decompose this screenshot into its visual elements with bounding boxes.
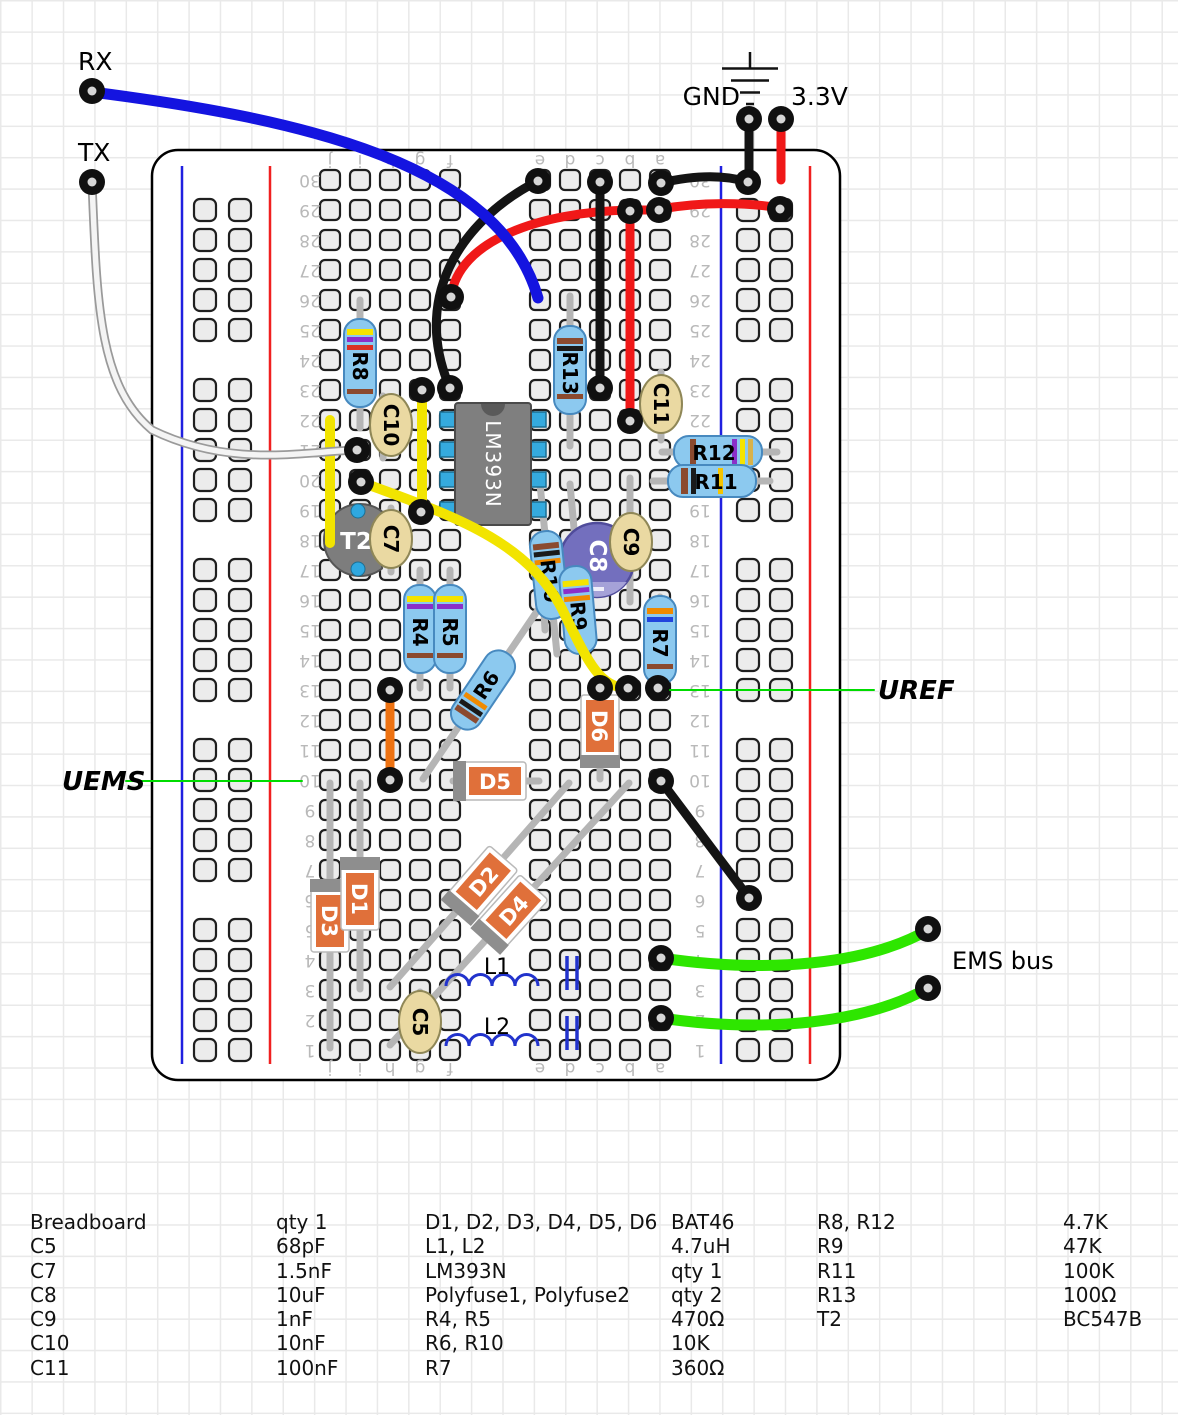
wire-terminal-hole (353, 446, 362, 455)
parts-row: D1, D2, D3, D4, D5, D6BAT46 (425, 1210, 735, 1234)
column-letter: d (565, 150, 576, 170)
board-hole (650, 800, 670, 820)
part-name: R11 (817, 1259, 1063, 1283)
part-value: 100Ω (1063, 1283, 1116, 1307)
component-d6: D6 (580, 695, 620, 768)
part-name: D1, D2, D3, D4, D5, D6 (425, 1210, 671, 1234)
board-hole (320, 590, 340, 610)
board-hole (380, 620, 400, 640)
rail-hole (737, 589, 759, 611)
rail-hole (229, 619, 251, 641)
parts-row: R11100K (817, 1259, 1142, 1283)
wire-terminal-hole (745, 115, 754, 124)
board-hole (320, 230, 340, 250)
rail-hole (770, 979, 792, 1001)
parts-row: R4, R5470Ω (425, 1307, 735, 1331)
part-value: 1.5nF (276, 1259, 332, 1283)
rail-hole (770, 229, 792, 251)
board-hole (380, 890, 400, 910)
board-hole (620, 860, 640, 880)
rail-hole (229, 949, 251, 971)
row-number: 30 (299, 170, 321, 190)
board-hole (350, 650, 370, 670)
row-number: 16 (689, 590, 711, 610)
board-hole (650, 890, 670, 910)
row-number: 10 (299, 770, 321, 790)
component-lm393n: LM393N (440, 403, 546, 525)
row-number: 9 (305, 800, 316, 820)
board-hole (320, 200, 340, 220)
wire-terminal-hole (447, 293, 456, 302)
part-value: 47K (1063, 1234, 1102, 1258)
row-number: 25 (299, 320, 321, 340)
row-number: 8 (305, 830, 316, 850)
t2-pin-bottom (351, 562, 365, 576)
board-hole (380, 350, 400, 370)
rail-hole (194, 919, 216, 941)
wire-terminal-hole (534, 177, 543, 186)
column-letter: a (655, 1058, 665, 1078)
board-hole (320, 620, 340, 640)
board-hole (560, 260, 580, 280)
board-hole (320, 680, 340, 700)
parts-row: C568pF (30, 1234, 338, 1258)
column-letter: b (625, 150, 636, 170)
component-c11: C11 (640, 375, 682, 433)
board-hole (320, 350, 340, 370)
part-value: 100nF (276, 1356, 338, 1380)
board-hole (590, 470, 610, 490)
board-hole (650, 290, 670, 310)
rail-hole (770, 559, 792, 581)
board-hole (620, 1040, 640, 1060)
row-number: 14 (689, 650, 711, 670)
board-hole (560, 890, 580, 910)
board-hole (650, 920, 670, 940)
c10-label: C10 (379, 404, 403, 447)
board-hole (620, 650, 640, 670)
row-number: 2 (305, 1010, 316, 1030)
rail-hole (194, 949, 216, 971)
component-r7: R7 (644, 596, 676, 684)
wire-terminal-hole (657, 179, 666, 188)
rail-hole (194, 319, 216, 341)
parts-row: C71.5nF (30, 1259, 338, 1283)
column-letter: j (328, 150, 334, 170)
board-hole (440, 530, 460, 550)
board-hole (380, 1010, 400, 1030)
rail-hole (194, 379, 216, 401)
rail-hole (229, 229, 251, 251)
column-letter: d (565, 1058, 576, 1078)
rail-hole (737, 619, 759, 641)
wire-terminal-hole (657, 954, 666, 963)
row-number: 4 (305, 950, 316, 970)
rail-hole (194, 199, 216, 221)
board-hole (380, 590, 400, 610)
board-hole (410, 350, 430, 370)
part-name: T2 (817, 1307, 1063, 1331)
board-hole (620, 950, 640, 970)
board-hole (650, 230, 670, 250)
row-number: 24 (689, 350, 711, 370)
rail-hole (770, 259, 792, 281)
column-letter: i (358, 1058, 363, 1078)
board-hole (620, 980, 640, 1000)
board-hole (620, 740, 640, 760)
board-hole (410, 800, 430, 820)
rail-hole (194, 1039, 216, 1061)
parts-row: R13100Ω (817, 1283, 1142, 1307)
board-hole (650, 350, 670, 370)
board-hole (410, 830, 430, 850)
board-hole (350, 620, 370, 640)
rail-hole (229, 739, 251, 761)
part-value: qty 2 (671, 1283, 722, 1307)
board-hole (410, 320, 430, 340)
rail-hole (770, 739, 792, 761)
component-r11: R11 (668, 465, 756, 497)
row-number: 18 (299, 530, 321, 550)
row-number: 27 (299, 260, 321, 280)
rail-hole (770, 619, 792, 641)
rail-hole (737, 1039, 759, 1061)
component-r4: R4 (404, 585, 436, 673)
l1-label: L1 (484, 955, 510, 980)
rail-hole (737, 979, 759, 1001)
board-hole (410, 740, 430, 760)
board-hole (530, 320, 550, 340)
column-letter: b (625, 1058, 636, 1078)
rail-hole (737, 289, 759, 311)
uref-label: UREF (878, 676, 955, 706)
rail-hole (737, 259, 759, 281)
parts-row: Breadboardqty 1 (30, 1210, 338, 1234)
board-hole (380, 290, 400, 310)
component-r5: R5 (434, 585, 466, 673)
row-number: 26 (299, 290, 321, 310)
board-hole (620, 890, 640, 910)
column-letter: f (446, 150, 453, 170)
part-value: qty 1 (276, 1210, 327, 1234)
board-hole (380, 800, 400, 820)
rail-hole (737, 829, 759, 851)
rail-hole (229, 979, 251, 1001)
board-hole (530, 380, 550, 400)
wire-terminal-hole (654, 684, 663, 693)
3v3-label: 3.3V (791, 82, 848, 111)
part-name: L1, L2 (425, 1234, 671, 1258)
board-hole (410, 890, 430, 910)
part-name: Breadboard (30, 1210, 276, 1234)
board-hole (440, 200, 460, 220)
rail-hole (194, 859, 216, 881)
r7-label: R7 (648, 628, 672, 657)
board-hole (410, 260, 430, 280)
part-value: 4.7uH (671, 1234, 731, 1258)
rx-label: RX (78, 47, 113, 76)
row-number: 11 (689, 740, 711, 760)
board-hole (320, 260, 340, 280)
r5-label: R5 (438, 617, 462, 646)
board-hole (650, 980, 670, 1000)
rail-hole (737, 409, 759, 431)
rail-hole (194, 679, 216, 701)
board-hole (590, 1040, 610, 1060)
board-hole (650, 710, 670, 730)
parts-row: LM393Nqty 1 (425, 1259, 735, 1283)
uems-label: UEMS (62, 767, 145, 797)
rail-hole (229, 409, 251, 431)
ems-bus-label: EMS bus (952, 947, 1054, 975)
rail-hole (770, 799, 792, 821)
row-number: 22 (299, 410, 321, 430)
board-hole (620, 440, 640, 460)
component-r13: R13 (554, 326, 586, 414)
rail-hole (194, 289, 216, 311)
row-number: 18 (689, 530, 711, 550)
rail-hole (229, 679, 251, 701)
board-hole (530, 650, 550, 670)
part-name: C9 (30, 1307, 276, 1331)
board-hole (560, 740, 580, 760)
row-number: 13 (299, 680, 321, 700)
rail-hole (737, 499, 759, 521)
parts-row: C810uF (30, 1283, 338, 1307)
rail-hole (737, 559, 759, 581)
rail-hole (770, 589, 792, 611)
board-hole (350, 260, 370, 280)
board-hole (560, 170, 580, 190)
board-hole (410, 290, 430, 310)
board-hole (350, 710, 370, 730)
board-hole (380, 200, 400, 220)
board-hole (380, 650, 400, 670)
wire-terminal-hole (657, 1014, 666, 1023)
wire-terminal-hole (626, 417, 635, 426)
board-hole (590, 980, 610, 1000)
row-number: 19 (299, 500, 321, 520)
r4-label: R4 (408, 617, 432, 646)
wire-terminal-hole (386, 776, 395, 785)
r12-label: R12 (692, 441, 735, 465)
parts-row: C91nF (30, 1307, 338, 1331)
row-number: 7 (695, 860, 706, 880)
column-letter: h (385, 1058, 396, 1078)
rail-hole (770, 649, 792, 671)
rail-hole (770, 769, 792, 791)
board-hole (620, 710, 640, 730)
row-number: 23 (299, 380, 321, 400)
board-hole (440, 320, 460, 340)
board-hole (380, 260, 400, 280)
part-name: R8, R12 (817, 1210, 1063, 1234)
board-hole (620, 920, 640, 940)
column-letter: a (655, 150, 665, 170)
board-hole (590, 500, 610, 520)
board-hole (530, 920, 550, 940)
row-number: 17 (299, 560, 321, 580)
rail-hole (737, 799, 759, 821)
part-name: R4, R5 (425, 1307, 671, 1331)
component-r8: R8 (344, 319, 376, 407)
t2-pin-top (351, 504, 365, 518)
row-number: 15 (689, 620, 711, 640)
part-name: C5 (30, 1234, 276, 1258)
board-hole (440, 830, 460, 850)
parts-row: L1, L24.7uH (425, 1234, 735, 1258)
board-hole (350, 680, 370, 700)
board-hole (350, 170, 370, 190)
wire-terminal-hole (596, 684, 605, 693)
rail-hole (194, 829, 216, 851)
row-number: 26 (689, 290, 711, 310)
row-number: 17 (689, 560, 711, 580)
column-letter: f (446, 1058, 453, 1078)
board-hole (590, 860, 610, 880)
wire-terminal-hole (88, 87, 97, 96)
rail-hole (194, 979, 216, 1001)
rail-hole (770, 1039, 792, 1061)
board-hole (650, 260, 670, 280)
rail-hole (737, 859, 759, 881)
board-hole (410, 710, 430, 730)
d1-label: D1 (347, 883, 371, 915)
board-hole (620, 830, 640, 850)
board-hole (650, 1040, 670, 1060)
board-hole (410, 920, 430, 940)
board-hole (350, 1040, 370, 1060)
wire-terminal-hole (745, 894, 754, 903)
c9-label: C9 (619, 528, 643, 557)
board-hole (560, 800, 580, 820)
rail-hole (770, 859, 792, 881)
board-hole (440, 1010, 460, 1030)
r13-label: R13 (558, 351, 582, 394)
part-value: BAT46 (671, 1210, 735, 1234)
row-number: 5 (695, 920, 706, 940)
board-hole (530, 740, 550, 760)
row-number: 14 (299, 650, 321, 670)
rail-hole (229, 649, 251, 671)
part-name: LM393N (425, 1259, 671, 1283)
board-hole (530, 710, 550, 730)
rail-hole (229, 559, 251, 581)
rail-hole (737, 379, 759, 401)
board-hole (620, 800, 640, 820)
part-value: 4.7K (1063, 1210, 1108, 1234)
rail-hole (737, 739, 759, 761)
board-hole (320, 710, 340, 730)
rail-hole (229, 919, 251, 941)
component-d5: D5 (453, 761, 526, 801)
board-hole (350, 740, 370, 760)
part-value: 470Ω (671, 1307, 724, 1331)
board-hole (560, 230, 580, 250)
part-value: 100K (1063, 1259, 1114, 1283)
board-hole (320, 320, 340, 340)
row-number: 10 (689, 770, 711, 790)
board-hole (530, 980, 550, 1000)
row-number: 6 (695, 890, 706, 910)
board-hole (320, 380, 340, 400)
rail-hole (194, 469, 216, 491)
rail-hole (229, 1009, 251, 1031)
row-number: 9 (695, 800, 706, 820)
board-hole (620, 1010, 640, 1030)
board-hole (560, 860, 580, 880)
board-hole (410, 230, 430, 250)
parts-row: C1010nF (30, 1331, 338, 1355)
board-hole (320, 650, 340, 670)
board-hole (650, 830, 670, 850)
part-name: R6, R10 (425, 1331, 671, 1355)
wire-terminal-hole (655, 206, 664, 215)
rail-hole (770, 379, 792, 401)
wire-terminal-hole (418, 386, 427, 395)
t2-label: T2 (340, 529, 372, 555)
wire-terminal-hole (924, 984, 933, 993)
board-hole (440, 1040, 460, 1060)
wire-terminal-hole (88, 178, 97, 187)
component-c9: C9 (610, 513, 652, 571)
board-hole (590, 890, 610, 910)
row-number: 11 (299, 740, 321, 760)
board-hole (440, 800, 460, 820)
rail-hole (770, 289, 792, 311)
rail-hole (737, 919, 759, 941)
part-value: 68pF (276, 1234, 326, 1258)
board-hole (530, 830, 550, 850)
board-hole (380, 830, 400, 850)
c7-label: C7 (379, 525, 403, 554)
board-hole (650, 320, 670, 340)
rail-hole (737, 319, 759, 341)
board-hole (650, 530, 670, 550)
part-name: C11 (30, 1356, 276, 1380)
parts-column-1: Breadboardqty 1C568pFC71.5nFC810uFC91nFC… (30, 1210, 338, 1380)
rail-hole (194, 229, 216, 251)
board-hole (590, 1010, 610, 1030)
board-hole (650, 740, 670, 760)
row-number: 20 (299, 470, 321, 490)
component-r12: R12 (674, 436, 762, 468)
rail-hole (770, 319, 792, 341)
c8-label: C8 (584, 540, 610, 573)
board-hole (320, 170, 340, 190)
column-letter: c (595, 1058, 604, 1078)
rail-hole (229, 379, 251, 401)
row-number: 23 (689, 380, 711, 400)
row-number: 1 (305, 1040, 316, 1060)
rail-hole (194, 649, 216, 671)
wire-terminal-hole (924, 925, 933, 934)
rail-hole (194, 1009, 216, 1031)
rail-hole (229, 829, 251, 851)
row-number: 19 (689, 500, 711, 520)
rail-hole (229, 499, 251, 521)
board-hole (590, 830, 610, 850)
wire-terminal-hole (446, 384, 455, 393)
l2-label: L2 (484, 1015, 510, 1040)
board-hole (650, 500, 670, 520)
part-name: R9 (817, 1234, 1063, 1258)
board-hole (590, 920, 610, 940)
board-hole (350, 230, 370, 250)
rail-hole (229, 319, 251, 341)
part-name: R13 (817, 1283, 1063, 1307)
parts-row: R7360Ω (425, 1356, 735, 1380)
